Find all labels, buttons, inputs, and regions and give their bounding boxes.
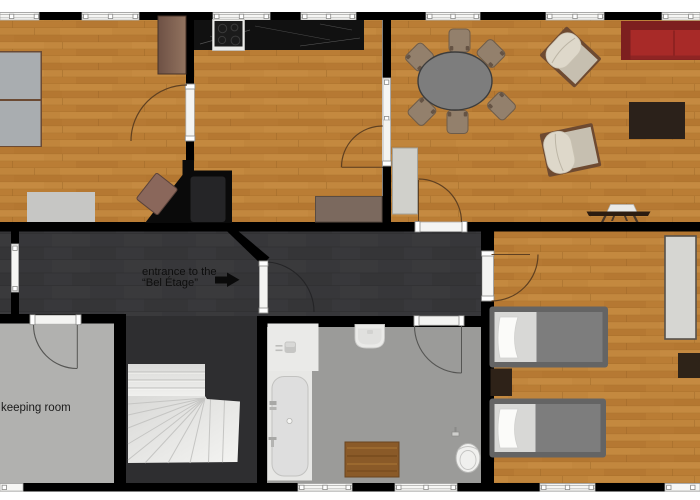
svg-text:keeping room: keeping room <box>1 402 71 414</box>
svg-text:“Bel Étage”: “Bel Étage” <box>142 276 198 289</box>
